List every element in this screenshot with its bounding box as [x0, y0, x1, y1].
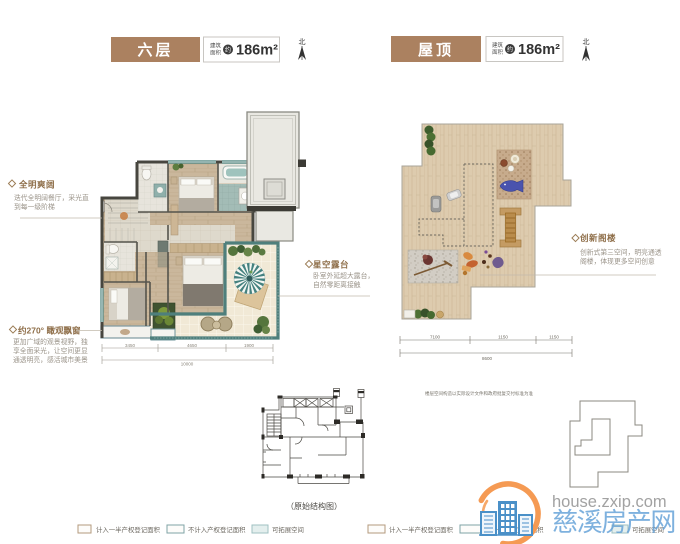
svg-text:约: 约 — [225, 46, 231, 54]
svg-text:慈溪房产网: 慈溪房产网 — [552, 507, 675, 537]
svg-text:1150: 1150 — [498, 335, 508, 340]
svg-text:卧室外延超大露台，: 卧室外延超大露台， — [313, 271, 374, 280]
svg-text:自然零距离接触: 自然零距离接触 — [313, 280, 361, 289]
svg-text:可拓展空间: 可拓展空间 — [272, 525, 304, 534]
svg-text:7100: 7100 — [430, 335, 441, 340]
svg-text:通透明亮，感活城市美景: 通透明亮，感活城市美景 — [13, 355, 88, 364]
svg-text:约270° 瞰观飘窗: 约270° 瞰观飘窗 — [18, 326, 81, 336]
svg-text:1900: 1900 — [244, 343, 255, 348]
svg-text:楼层空间构造以实际设计文件和政府批复交付标准为准: 楼层空间构造以实际设计文件和政府批复交付标准为准 — [425, 390, 533, 397]
svg-text:186m²: 186m² — [518, 42, 560, 58]
svg-text:六层: 六层 — [137, 41, 173, 59]
svg-text:10000: 10000 — [181, 362, 194, 367]
svg-text:4650: 4650 — [187, 343, 198, 348]
svg-text:北: 北 — [583, 38, 590, 46]
svg-text:建筑: 建筑 — [210, 42, 222, 50]
svg-text:创新阁楼: 创新阁楼 — [579, 233, 616, 243]
svg-text:北: 北 — [299, 38, 306, 46]
svg-text:面积: 面积 — [210, 50, 222, 57]
svg-text:（原始结构图）: （原始结构图） — [286, 501, 342, 511]
svg-text:1150: 1150 — [549, 335, 559, 340]
svg-text:3450: 3450 — [125, 343, 136, 348]
svg-text:阁楼，体现更多空间创意: 阁楼，体现更多空间创意 — [580, 257, 655, 266]
svg-text:计入一半产权登记面积: 计入一半产权登记面积 — [96, 525, 161, 534]
svg-text:到每一级阶梯: 到每一级阶梯 — [14, 202, 55, 211]
svg-text:不计入产权登记面积: 不计入产权登记面积 — [188, 525, 246, 534]
svg-text:面积: 面积 — [492, 49, 504, 56]
svg-text:迭代全明阔餐厅，采光直: 迭代全明阔餐厅，采光直 — [14, 193, 89, 202]
svg-text:屋顶: 屋顶 — [418, 42, 454, 59]
svg-text:186m²: 186m² — [236, 43, 278, 59]
svg-text:享全面采光，让空间更显: 享全面采光，让空间更显 — [13, 346, 88, 355]
svg-text:建筑: 建筑 — [492, 41, 504, 49]
svg-text:8600: 8600 — [482, 356, 493, 361]
svg-text:全明爽阔: 全明爽阔 — [18, 180, 55, 190]
svg-text:星空露台: 星空露台 — [313, 260, 349, 270]
svg-text:计入一半产权登记面积: 计入一半产权登记面积 — [389, 525, 454, 534]
svg-text:约: 约 — [507, 46, 513, 54]
svg-text:更加广域的观景视野，独: 更加广域的观景视野，独 — [13, 337, 88, 346]
svg-text:创新式第三空间，明亮通透: 创新式第三空间，明亮通透 — [580, 248, 662, 257]
